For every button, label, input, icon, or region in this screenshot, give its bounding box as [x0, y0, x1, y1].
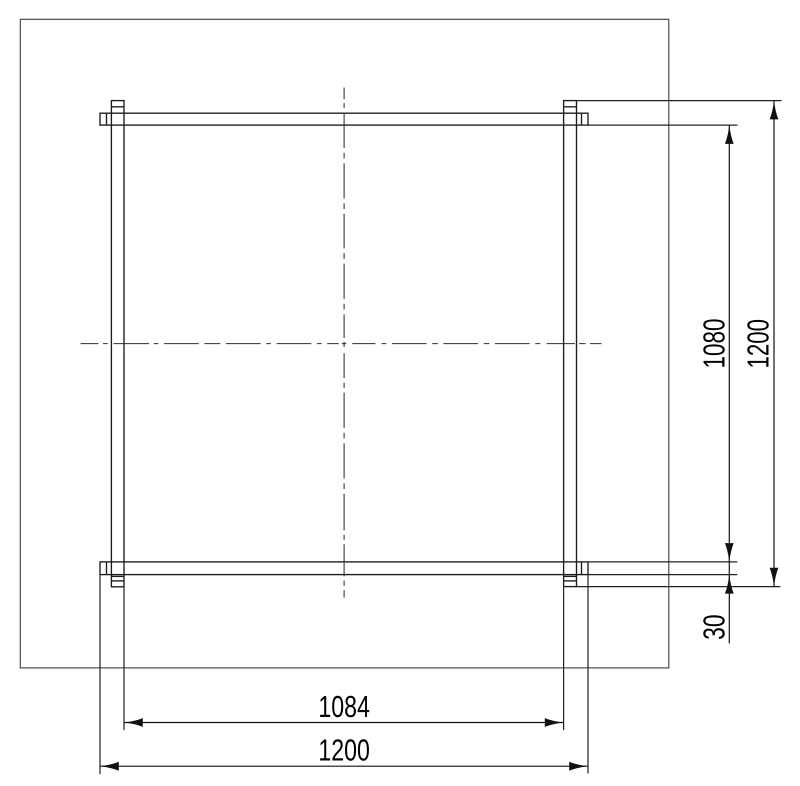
svg-text:1200: 1200	[318, 733, 370, 768]
svg-text:1200: 1200	[740, 319, 775, 369]
svg-text:30: 30	[697, 614, 732, 640]
svg-text:1080: 1080	[697, 319, 732, 369]
svg-text:1084: 1084	[318, 689, 370, 724]
